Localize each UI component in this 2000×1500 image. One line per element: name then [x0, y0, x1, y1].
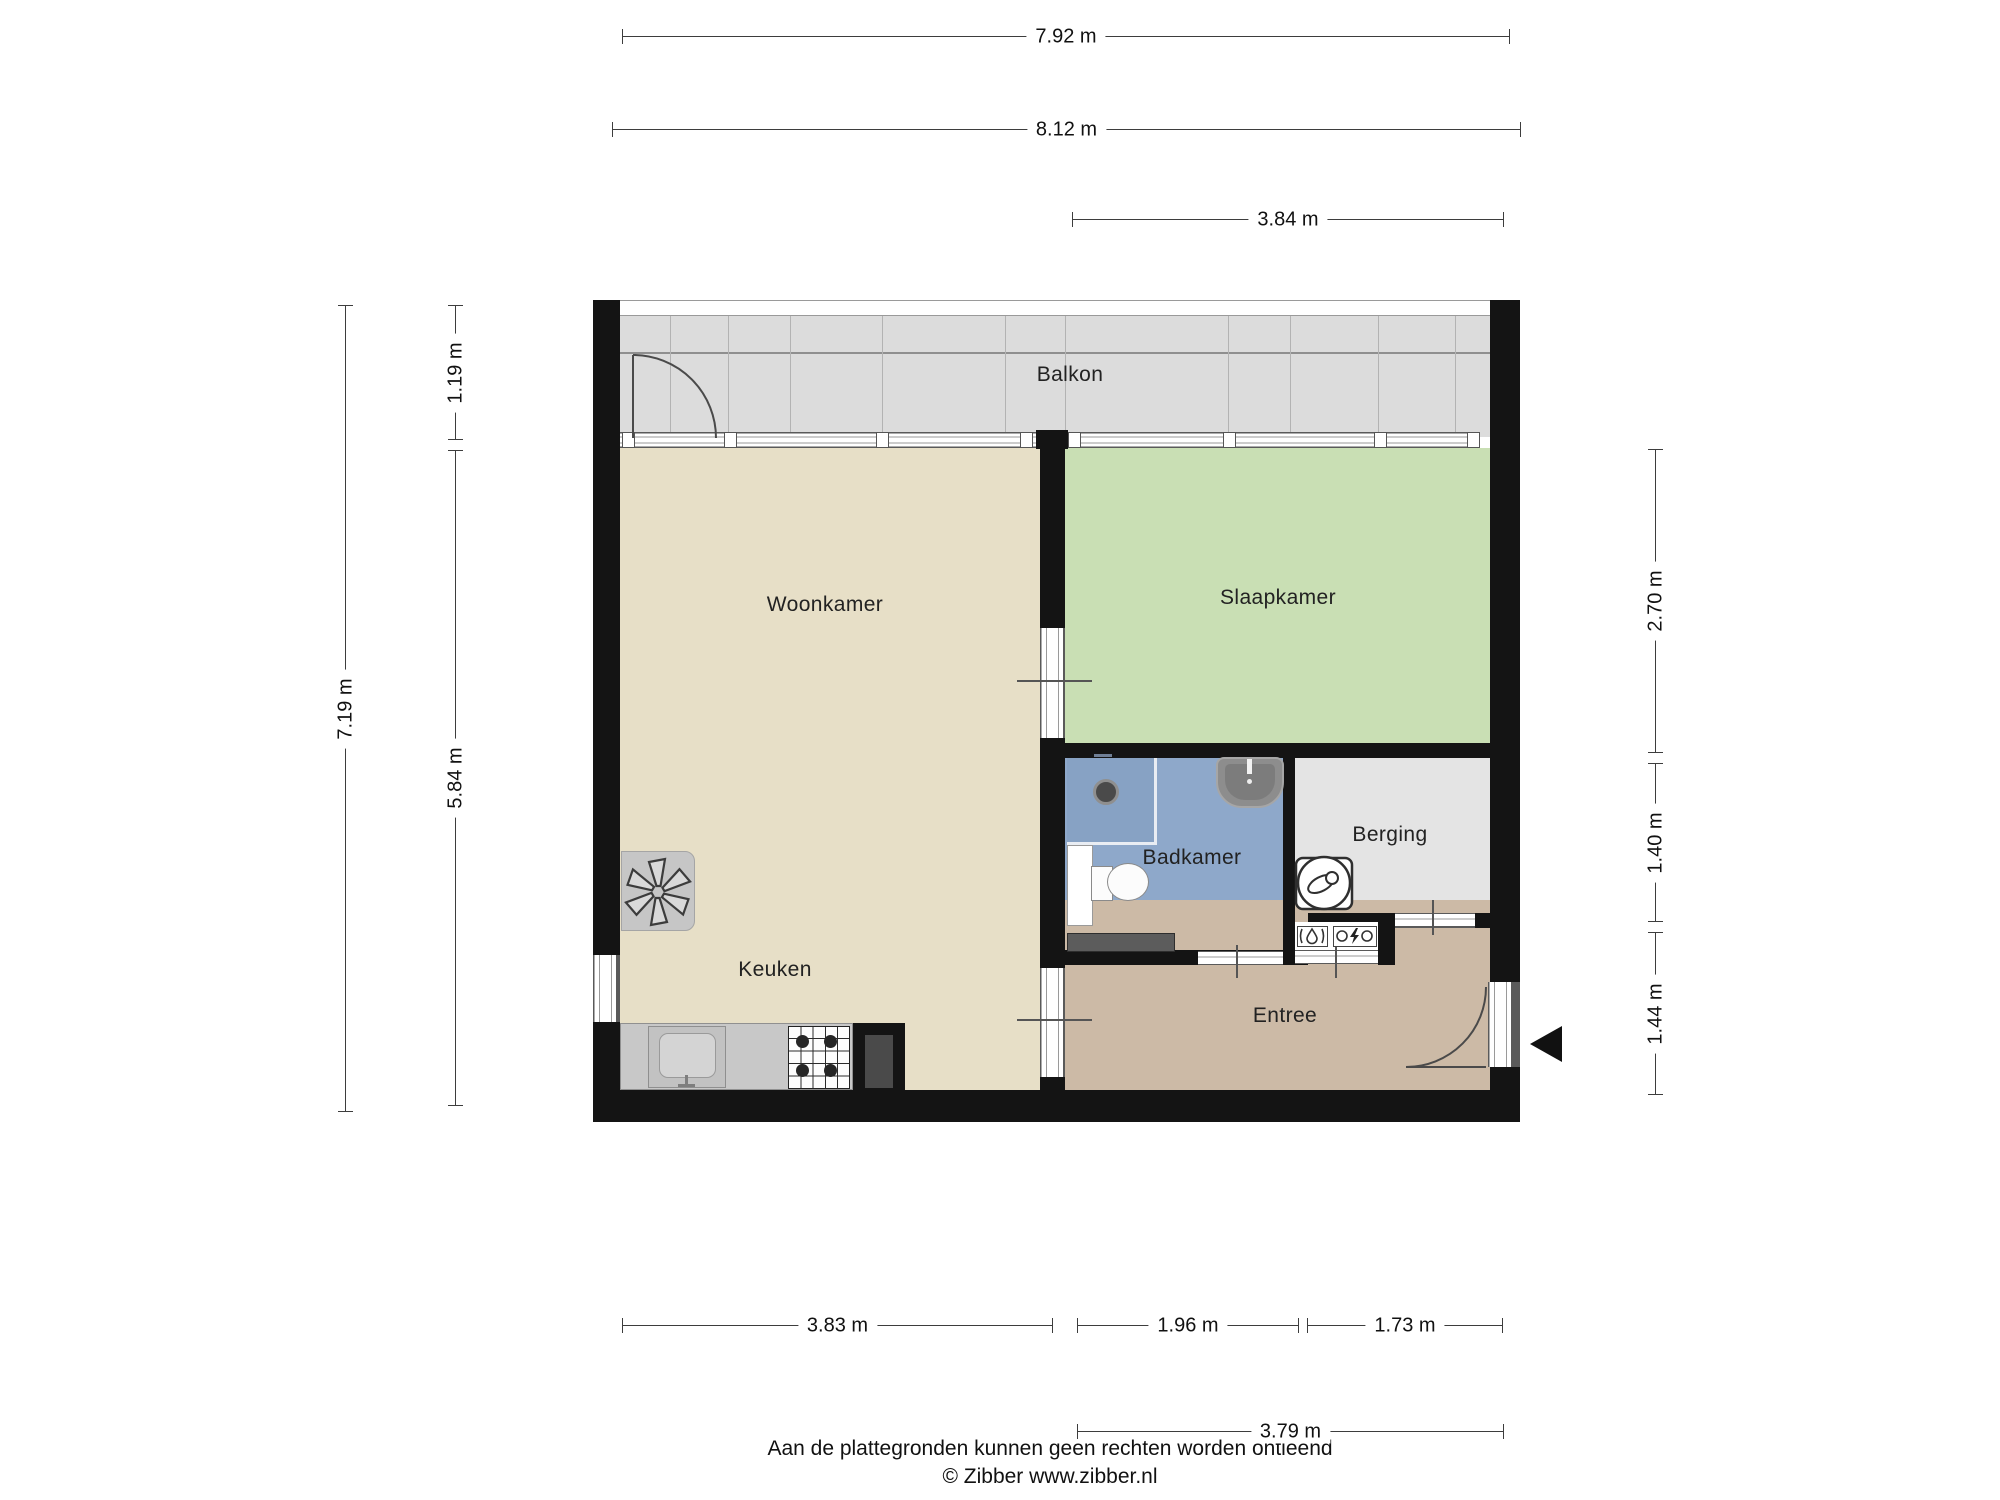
- sink-basin: [659, 1033, 716, 1078]
- shaft-inner: [865, 1035, 893, 1088]
- wall-band-pier: [1036, 430, 1068, 449]
- balkon-railing: [617, 300, 1497, 316]
- dimension-label: 2.70 m: [1644, 561, 1667, 640]
- washing-machine-icon: [1294, 854, 1354, 913]
- opening-front-door: [1488, 982, 1520, 1067]
- entrance-arrow-icon: [1530, 1026, 1562, 1062]
- dimension-label: 7.19 m: [334, 669, 357, 748]
- opening-tick: [1017, 1019, 1092, 1021]
- dimension-label: 5.84 m: [444, 738, 467, 817]
- balkon-door-swing-icon: [630, 352, 720, 442]
- shower-icon: [1067, 758, 1157, 845]
- dimension-label: 1.40 m: [1644, 803, 1667, 882]
- label-keuken: Keuken: [738, 958, 812, 982]
- shaft: [853, 1023, 905, 1090]
- kitchen-sink-icon: [648, 1026, 726, 1088]
- window-keuken: [593, 955, 620, 1022]
- window-mullion: [1068, 432, 1081, 448]
- window-mullion: [724, 432, 737, 448]
- label-woonkamer: Woonkamer: [767, 593, 883, 617]
- opening-tick: [1335, 946, 1337, 978]
- stove-burner: [824, 1035, 837, 1048]
- water-meter-icon: [1297, 926, 1328, 947]
- window-mullion: [1223, 432, 1236, 448]
- opening-tick: [1432, 900, 1434, 935]
- label-berging: Berging: [1352, 823, 1427, 847]
- stove-burner: [824, 1064, 837, 1077]
- dimension-label: 1.96 m: [1148, 1314, 1227, 1337]
- washbasin-faucet: [1247, 759, 1252, 774]
- bathroom-door: [1067, 845, 1093, 926]
- dimension-label: 3.83 m: [798, 1314, 877, 1337]
- balkon-grid-line: [1228, 316, 1229, 437]
- floorplan-canvas: 7.92 m 8.12 m 3.84 m 7.19 m 1.19 m 5.84 …: [0, 0, 2000, 1500]
- opening-tick: [1017, 680, 1092, 682]
- opening-tick: [1236, 945, 1238, 978]
- balkon-grid-line: [728, 316, 729, 437]
- balkon-grid-line: [790, 316, 791, 437]
- opening-badkamer-entree: [1198, 951, 1283, 965]
- window-mullion: [1374, 432, 1387, 448]
- window-balkon-slaapkamer: [1068, 432, 1480, 448]
- sink-faucet: [678, 1084, 695, 1087]
- dimension-label: 7.92 m: [1026, 25, 1105, 48]
- balkon-grid-line: [1455, 316, 1456, 437]
- balkon-grid-line: [620, 352, 1495, 354]
- label-slaapkamer: Slaapkamer: [1220, 586, 1336, 610]
- shower-faucet: [1094, 754, 1112, 757]
- dimension-label: 1.19 m: [444, 333, 467, 412]
- radiator: [1067, 933, 1175, 952]
- stove-burner: [796, 1035, 809, 1048]
- window-mullion: [876, 432, 889, 448]
- wall-bottom: [593, 1090, 1520, 1122]
- dimension-label: 3.79 m: [1251, 1420, 1330, 1443]
- ventilation-fan-icon: [621, 851, 695, 931]
- balkon-grid-line: [1378, 316, 1379, 437]
- balkon-grid-line: [1005, 316, 1006, 437]
- dimension-label: 3.84 m: [1248, 208, 1327, 231]
- dimension-label: 8.12 m: [1027, 118, 1106, 141]
- washbasin-icon: [1216, 757, 1284, 808]
- label-badkamer: Badkamer: [1143, 846, 1242, 870]
- front-door-swing-icon: [1398, 980, 1490, 1070]
- opening-berging-entree: [1395, 913, 1475, 928]
- stove-icon: [788, 1026, 850, 1089]
- window-woonkamer-entree: [1040, 968, 1065, 1077]
- footer-disclaimer: Aan de plattegronden kunnen geen rechten…: [550, 1437, 1550, 1461]
- floor-plan: Balkon Woonkamer Slaapkamer Badkamer Ber…: [0, 0, 2000, 1500]
- washbasin-drain: [1247, 779, 1252, 784]
- wall-meterkast-right: [1378, 913, 1395, 965]
- window-mullion: [1020, 432, 1033, 448]
- label-balkon: Balkon: [1037, 363, 1104, 387]
- opening-meterkast: [1295, 950, 1378, 964]
- dimension-label: 1.44 m: [1644, 974, 1667, 1053]
- shower-head-icon: [1093, 779, 1119, 805]
- window-woonkamer-slaapkamer: [1040, 628, 1065, 738]
- window-mullion: [1467, 432, 1480, 448]
- label-entree: Entree: [1253, 1004, 1317, 1028]
- electricity-meter-icon: [1333, 926, 1377, 947]
- stove-burner: [796, 1064, 809, 1077]
- room-woonkamer: [620, 448, 1065, 1090]
- dimension-label: 1.73 m: [1365, 1314, 1444, 1337]
- fan-blades-icon: [622, 852, 694, 930]
- balkon-grid-line: [882, 316, 883, 437]
- balkon-grid-line: [1290, 316, 1291, 437]
- footer-credit: © Zibber www.zibber.nl: [550, 1465, 1550, 1489]
